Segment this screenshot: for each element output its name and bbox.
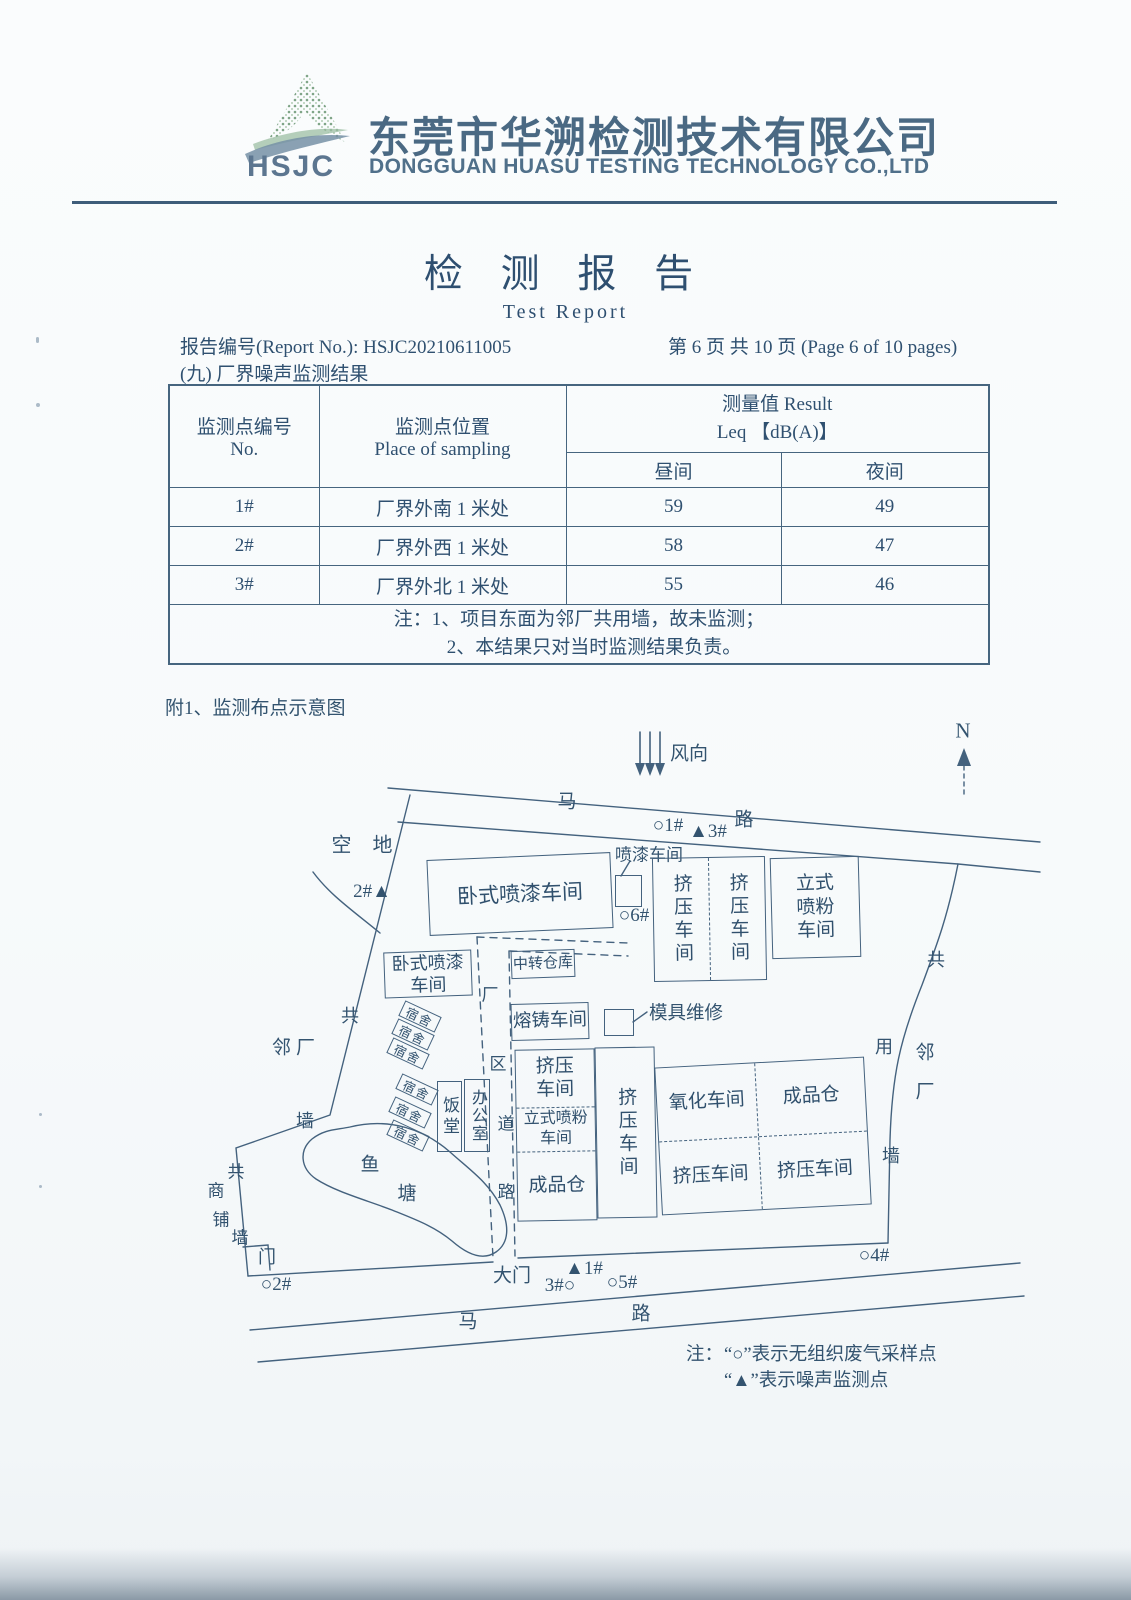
- scan-artifact: [36, 403, 40, 407]
- building-extrusion-double: 挤压车间 挤压车间: [652, 856, 767, 982]
- building-horizontal-paint-main: 卧式喷漆车间: [426, 852, 613, 936]
- top-road-char-lu: 路: [734, 805, 753, 832]
- cell-day: 55: [566, 566, 781, 605]
- wind-arrows-icon: [640, 732, 660, 763]
- cell-night: 46: [781, 566, 989, 605]
- col-header-place-cn: 监测点位置: [320, 412, 566, 439]
- col-header-no-cn: 监测点编号: [170, 412, 319, 439]
- label-empty-lot: 空 地: [332, 829, 401, 858]
- label-shop-wall-1: 共: [228, 1158, 245, 1183]
- wind-direction-label: 风向: [670, 739, 708, 766]
- paint2-line-2: 车间: [392, 973, 465, 998]
- paint2-line-1: 卧式喷漆: [391, 950, 464, 975]
- page-indicator: 第 6 页 共 10 页 (Page 6 of 10 pages): [668, 332, 957, 359]
- cell-place: 厂界外北 1 米处: [319, 566, 566, 605]
- boundary-south-right: [518, 1243, 888, 1258]
- cell-night: 47: [781, 527, 989, 566]
- wind-arrowhead: [655, 763, 665, 776]
- powder-line-2: 喷粉: [796, 895, 835, 920]
- report-number: 报告编号(Report No.): HSJC20210611005: [180, 332, 511, 359]
- col-header-night: 夜间: [781, 453, 989, 488]
- top-road-char-ma: 马: [557, 787, 576, 814]
- building-paint-small-box: [615, 875, 642, 907]
- label-shop-wall-2: 商: [208, 1177, 225, 1202]
- scan-artifact: [36, 337, 39, 343]
- building-extrusion-a: 挤压车间: [669, 873, 694, 965]
- col-header-place-en: Place of sampling: [320, 439, 566, 461]
- cell-no: 1#: [169, 488, 319, 527]
- point-circle-2-bottom: ○2#: [261, 1274, 291, 1296]
- cell-place: 厂界外西 1 米处: [319, 527, 566, 566]
- building-extrusion-c: 挤压车间: [659, 1137, 763, 1215]
- blk-store-label: 成品仓: [528, 1173, 585, 1198]
- label-main-gate: 大门: [493, 1261, 531, 1288]
- building-office: 办公室: [464, 1079, 490, 1152]
- col-header-no: 监测点编号 No.: [169, 385, 319, 488]
- label-neighbor-right-2: 厂: [915, 1077, 934, 1104]
- label-neighbor-left: 邻厂: [272, 1033, 320, 1060]
- point-circle-6: ○6#: [619, 905, 649, 927]
- col-header-day: 昼间: [566, 453, 781, 488]
- blk-extrude-line-2: 车间: [536, 1078, 574, 1102]
- col-header-place: 监测点位置 Place of sampling: [319, 385, 566, 488]
- scan-edge-shadow: [0, 1548, 1131, 1600]
- scan-artifact: [39, 1113, 42, 1116]
- label-neighbor-right-1: 邻: [915, 1038, 934, 1065]
- blk-extrude-line-1: 挤压: [536, 1054, 574, 1078]
- bottom-road-char-ma: 马: [458, 1307, 477, 1334]
- powder-line-1: 立式: [796, 871, 835, 896]
- section-title: (九) 厂界噪声监测结果: [180, 359, 368, 386]
- building-canteen: 饭堂: [437, 1081, 462, 1152]
- label-wall-left-2: 墙: [296, 1107, 314, 1133]
- extrude-mid-label: 挤压车间: [613, 1086, 638, 1178]
- building-oxidation: 氧化车间: [655, 1063, 759, 1141]
- label-factory-road-4: 路: [498, 1178, 515, 1203]
- scan-artifact: [39, 1185, 42, 1188]
- cell-day: 59: [566, 488, 781, 527]
- label-shop-wall-4: 墙: [232, 1224, 249, 1249]
- cell-place: 厂界外南 1 米处: [319, 488, 566, 527]
- point-circle-5: ○5#: [607, 1272, 637, 1294]
- result-header-cn: 测量值 Result: [567, 391, 989, 419]
- result-header-unit: Leq 【dB(A)】: [567, 419, 989, 447]
- canteen-label: 饭堂: [439, 1096, 460, 1138]
- diagram-caption: 附1、监测布点示意图: [165, 693, 346, 720]
- building-block-left-column: 挤压 车间 立式喷粉 车间 成品仓: [515, 1048, 598, 1221]
- label-factory-road-1: 厂: [482, 981, 499, 1006]
- report-title-en: Test Report: [0, 301, 1131, 324]
- mold-leader: [633, 1012, 647, 1022]
- cell-no: 3#: [169, 566, 319, 605]
- north-arrow-icon: [957, 748, 971, 766]
- compass-north-label: N: [955, 719, 970, 744]
- wind-arrowhead: [645, 763, 655, 776]
- table-row: 1# 厂界外南 1 米处 59 49: [169, 488, 989, 527]
- legend-prefix: 注：: [686, 1340, 723, 1366]
- label-door: 门: [258, 1243, 276, 1269]
- boundary-west: [236, 795, 410, 1276]
- note-line-2: 2、本结果只对当时监测结果负责。: [170, 634, 988, 662]
- label-pond-2: 塘: [397, 1179, 416, 1206]
- building-block-right: 氧化车间 成品仓 挤压车间 挤压车间: [654, 1057, 871, 1216]
- col-header-result: 测量值 Result Leq 【dB(A)】: [566, 385, 989, 453]
- building-finished-goods: 成品仓: [756, 1058, 867, 1136]
- building-extrusion-middle: 挤压车间: [595, 1046, 658, 1218]
- note-line-1: 注：1、项目东面为邻厂共用墙，故未监测；: [170, 606, 988, 634]
- point-circle-4: ○4#: [859, 1245, 889, 1267]
- building-horizontal-paint-2: 卧式喷漆 车间: [383, 949, 473, 998]
- office-label: 办公室: [467, 1089, 487, 1143]
- label-wall-right-2: 用: [875, 1033, 893, 1059]
- label-wall-left-1: 共: [341, 1002, 359, 1028]
- logo-abbr-text: HSJC: [247, 150, 335, 184]
- legend-line-1: “○”表示无组织废气采样点: [724, 1340, 937, 1366]
- wind-arrowhead: [635, 763, 645, 776]
- cell-night: 49: [781, 488, 989, 527]
- report-title-cn: 检 测 报 告: [0, 243, 1131, 299]
- blk-powder-line-1: 立式喷粉: [524, 1109, 588, 1130]
- label-factory-road-3: 道: [498, 1110, 515, 1135]
- cell-no: 2#: [169, 527, 319, 566]
- point-triangle-2-left: 2#▲: [353, 881, 391, 903]
- table-row: 2# 厂界外西 1 米处 58 47: [169, 527, 989, 566]
- table-row: 3# 厂界外北 1 米处 55 46: [169, 566, 989, 605]
- building-mold-repair-box: [604, 1009, 634, 1036]
- label-shop-wall-3: 铺: [213, 1206, 230, 1231]
- building-vertical-powder: 立式 喷粉 车间: [770, 856, 862, 959]
- building-transfer-warehouse: 中转仓库: [511, 949, 576, 979]
- company-name-en: DONGGUAN HUASU TESTING TECHNOLOGY CO.,LT…: [369, 155, 929, 179]
- building-melting: 熔铸车间: [511, 1002, 590, 1041]
- point-circle-1-top: ○1#: [653, 815, 683, 837]
- label-pond-1: 鱼: [360, 1150, 379, 1177]
- noise-results-table: 监测点编号 No. 监测点位置 Place of sampling 测量值 Re…: [168, 384, 990, 665]
- legend-line-2: “▲”表示噪声监测点: [724, 1366, 888, 1392]
- label-wall-right-1: 共: [927, 946, 945, 972]
- header-divider: [72, 201, 1057, 204]
- point-triangle-3-top: ▲3#: [689, 821, 727, 843]
- blk-powder-line-2: 车间: [540, 1129, 572, 1150]
- bottom-road-char-lu: 路: [631, 1299, 650, 1326]
- cell-day: 58: [566, 527, 781, 566]
- label-wall-right-3: 墙: [882, 1142, 900, 1168]
- col-header-no-en: No.: [170, 439, 319, 461]
- powder-line-3: 车间: [797, 919, 836, 944]
- label-factory-road-2: 区: [490, 1050, 507, 1075]
- building-extrusion-b: 挤压车间: [725, 872, 750, 964]
- scanned-report-page: HSJC 东莞市华溯检测技术有限公司 DONGGUAN HUASU TESTIN…: [0, 0, 1131, 1600]
- table-notes: 注：1、项目东面为邻厂共用墙，故未监测； 2、本结果只对当时监测结果负责。: [169, 605, 989, 665]
- building-extrusion-d: 挤压车间: [759, 1131, 870, 1209]
- point-circle-3-gate: 3#○: [545, 1275, 575, 1297]
- label-mold-repair: 模具维修: [649, 999, 723, 1025]
